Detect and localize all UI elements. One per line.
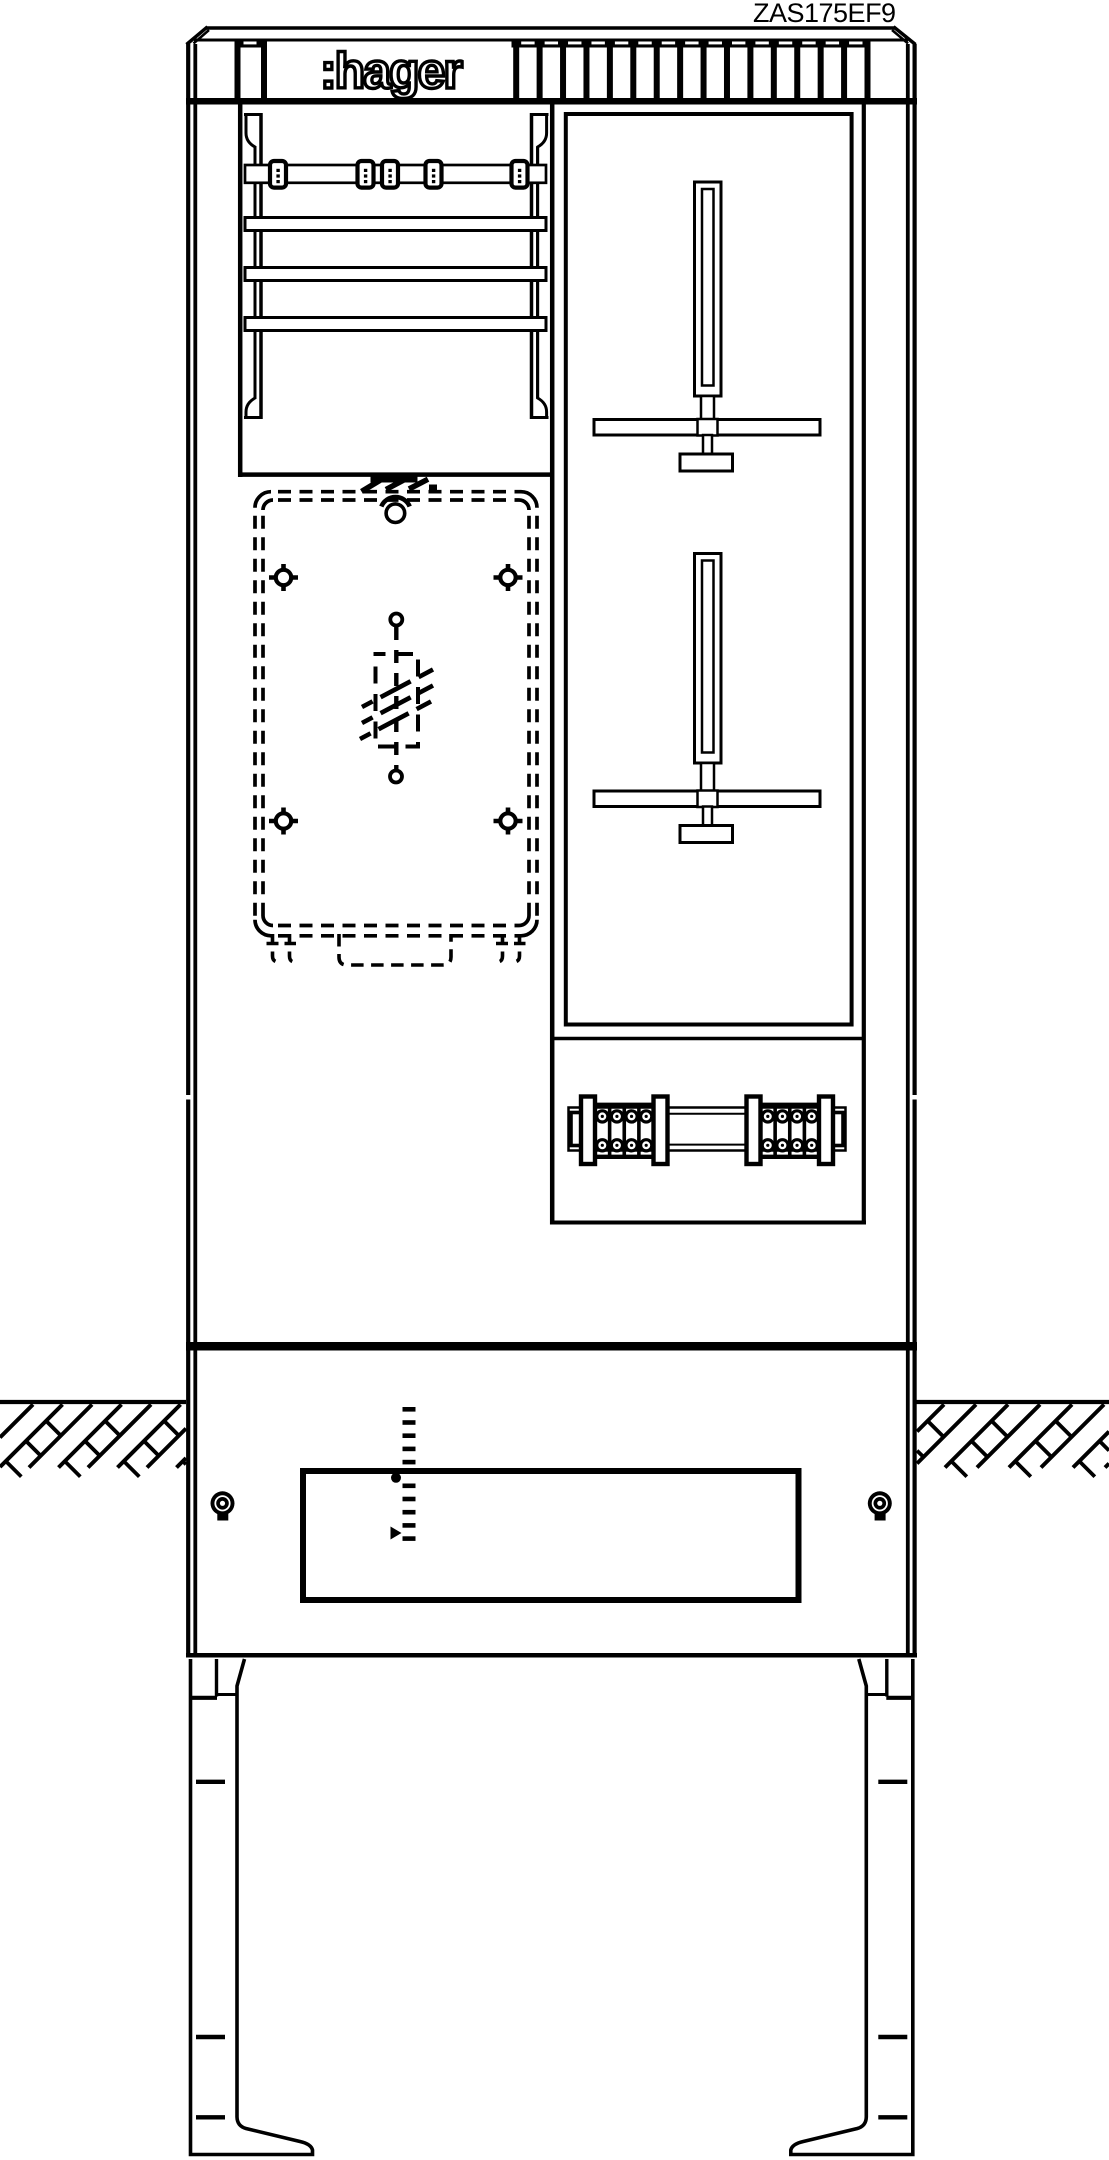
svg-text::hager: :hager	[320, 43, 462, 99]
svg-text:ZAS175EF9: ZAS175EF9	[753, 0, 896, 28]
